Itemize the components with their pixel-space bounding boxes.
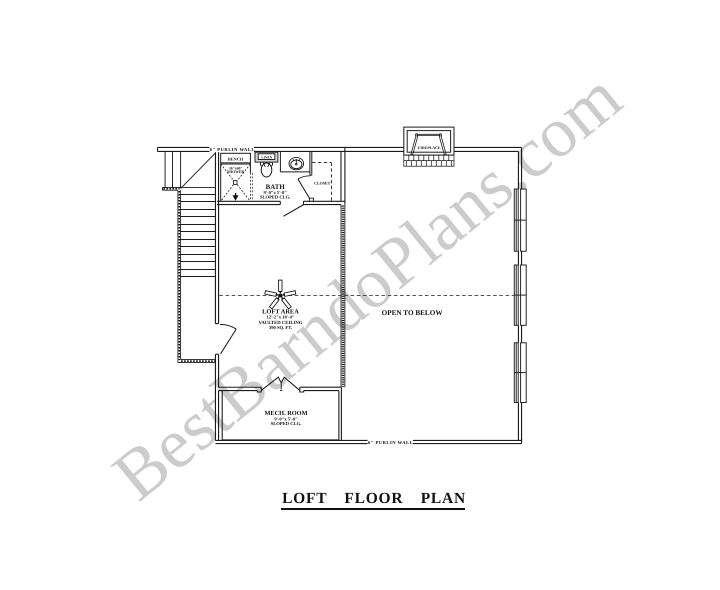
svg-text:CLOSET: CLOSET: [314, 180, 331, 185]
svg-text:LINEN: LINEN: [261, 155, 272, 159]
svg-text:SLOPED CLG.: SLOPED CLG.: [260, 195, 291, 200]
svg-text:SHOWER: SHOWER: [227, 170, 244, 174]
svg-text:BENCH: BENCH: [228, 156, 244, 161]
svg-text:OPEN TO BELOW: OPEN TO BELOW: [382, 309, 444, 317]
svg-text:6" PURLIN WALL: 6" PURLIN WALL: [368, 440, 413, 445]
svg-text:FIREPLACE: FIREPLACE: [418, 146, 441, 150]
svg-text:390 SQ. FT.: 390 SQ. FT.: [269, 325, 292, 330]
svg-text:SLOPED CLG.: SLOPED CLG.: [271, 421, 302, 426]
svg-text:12'-2"x 18'-4": 12'-2"x 18'-4": [267, 315, 295, 320]
svg-text:6" PURLIN WALL: 6" PURLIN WALL: [210, 147, 255, 152]
